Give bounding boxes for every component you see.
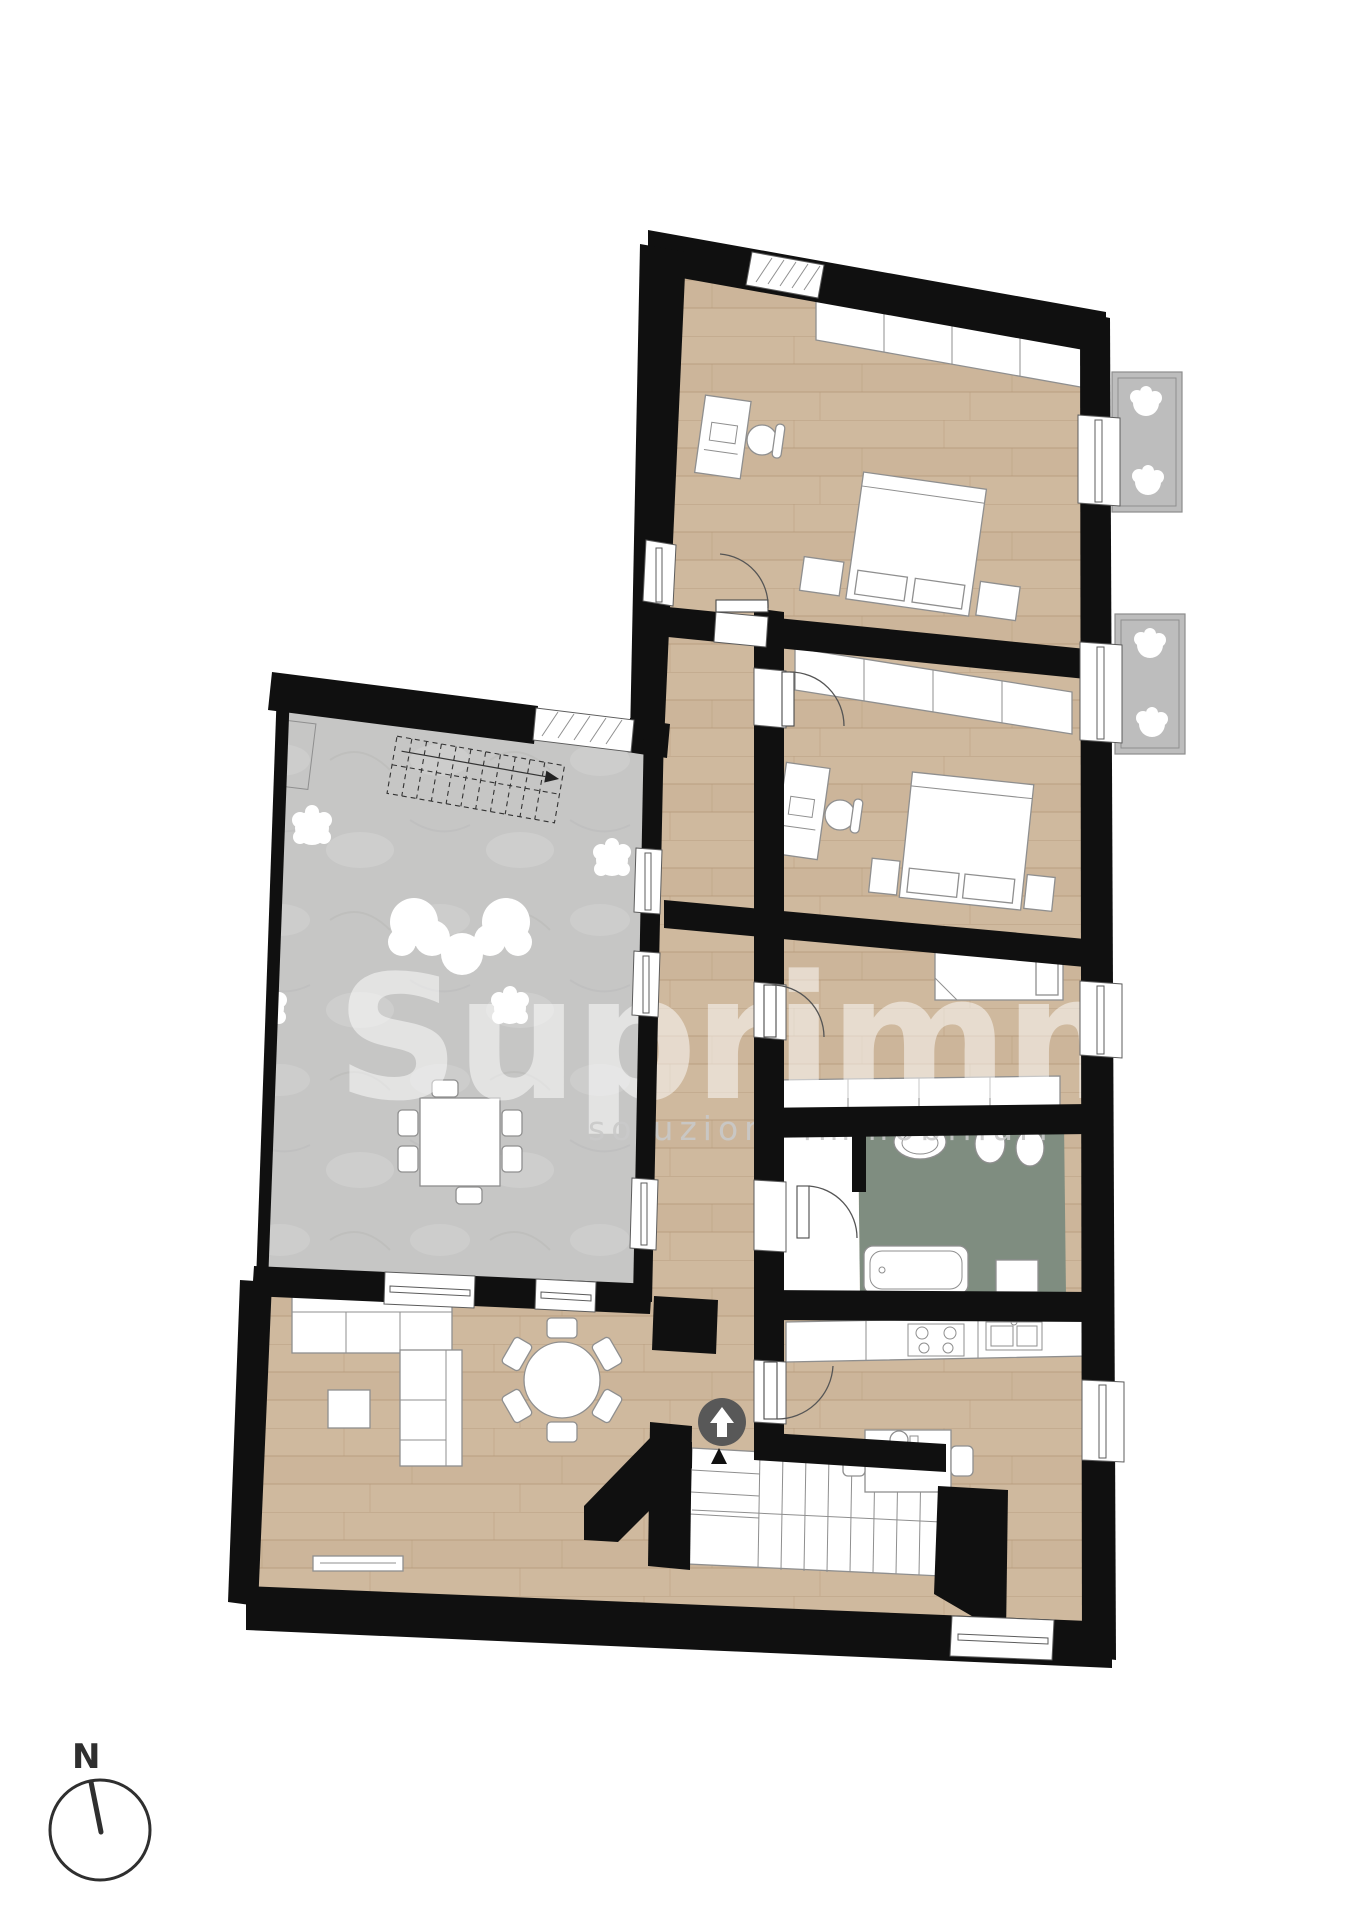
window-bed3 [1080,981,1122,1058]
wall-corridor-entry-stub [652,1296,718,1354]
tv-sideboard [313,1556,403,1571]
window-corridor-1 [634,848,662,914]
wall-bath-lobby-stub [852,1126,866,1192]
window-corridor-2 [632,951,660,1017]
window-living-2 [535,1279,596,1312]
window-living-1 [384,1272,475,1308]
floor-plan-page: Suprimm soluzioni immobiliari [0,0,1358,1920]
entrance-badge [698,1398,746,1446]
compass-north-label: N [72,1737,100,1777]
door-balcony-2 [1080,642,1122,743]
compass: N [50,1737,150,1880]
round-table [524,1342,600,1418]
coffee-table [328,1390,370,1428]
window-kitchen-bottom [950,1616,1054,1660]
balcony-1 [1112,372,1182,512]
desk [695,395,751,479]
wall-bath-kitchen [754,1290,1092,1322]
bathroom-lobby-floor [784,1128,860,1300]
kitchen-counter [786,1316,1088,1362]
door-balcony-1 [1078,415,1120,506]
floor-plan-drawing: Suprimm soluzioni immobiliari [0,0,1358,1920]
window-kitchen-right [1082,1380,1124,1462]
wall-entry-living [648,1422,692,1570]
door-corridor-bath-lobby [754,1180,786,1252]
window-wing-left [643,540,676,606]
bath-cabinet [996,1260,1038,1292]
balcony-2 [1115,614,1185,754]
bathtub [864,1246,968,1294]
wall-bed3-bath [756,1104,1090,1138]
window-corridor-3 [630,1178,658,1250]
compass-needle [91,1782,101,1832]
